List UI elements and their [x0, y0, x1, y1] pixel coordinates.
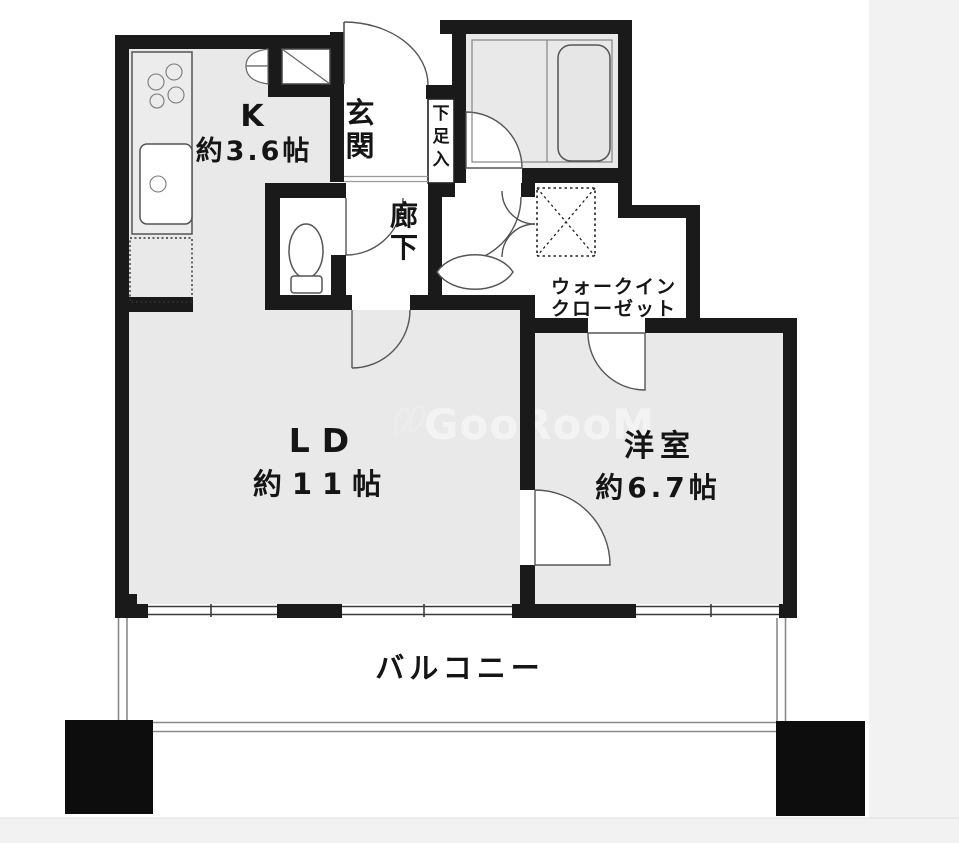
bathroom-east-wall: [618, 20, 632, 218]
kitchen-label: K: [240, 99, 265, 134]
washroom-door-opening: [455, 183, 521, 197]
bathtub-icon: [558, 45, 610, 161]
entrance-west-wall: [330, 32, 344, 182]
hall-washroom-divider-wall: [428, 183, 442, 310]
page-bottom-band: [0, 818, 959, 843]
hallway-label: 廊下: [390, 199, 418, 264]
living-dining-size-label: 約11帖: [253, 467, 391, 501]
walk-in-closet-label-line2: クローゼット: [551, 297, 677, 320]
south-wall-segment: [115, 604, 148, 618]
shoe-box-label: 下足入: [433, 104, 450, 170]
balcony-label: バルコニー: [375, 651, 544, 685]
western-room-north-wall: [520, 318, 797, 333]
shaft-south-wall: [268, 84, 344, 97]
toilet-south-wall: [265, 295, 346, 310]
left-pillar: [65, 720, 153, 814]
right-pillar: [776, 721, 865, 816]
page-right-band: [869, 0, 959, 843]
floor-plan-page: GooRooM: [0, 0, 959, 843]
western-room-size-label: 約6.7帖: [595, 471, 721, 504]
closet-east-wall: [686, 205, 700, 331]
hallway-ld-door-opening: [352, 295, 410, 310]
watermark-text: GooRooM: [424, 400, 655, 449]
west-wall: [115, 35, 129, 618]
south-wall-segment: [512, 604, 636, 618]
bathroom-north-wall: [440, 20, 632, 34]
closet-door-opening: [588, 318, 645, 333]
toilet-west-wall: [265, 183, 280, 310]
east-wall: [783, 318, 797, 618]
toilet-door-opening: [331, 198, 346, 255]
washroom-south-wall: [428, 295, 535, 310]
toilet-bowl-icon: [289, 224, 323, 278]
south-wall-segment: [779, 604, 797, 618]
south-wall-segment: [277, 604, 342, 618]
ld-western-door-opening: [520, 490, 535, 565]
toilet-tank-icon: [291, 276, 322, 293]
living-dining-label: LD: [289, 421, 361, 460]
kitchen-south-wall: [115, 297, 193, 312]
kitchen-north-wall: [115, 35, 344, 49]
floor-plan-drawing: GooRooM: [0, 0, 959, 843]
kitchen-size-label: 約3.6帖: [196, 135, 313, 167]
bathroom-door-opening: [466, 168, 522, 183]
shoebox-north-wall: [426, 85, 454, 99]
western-room-label: 洋室: [624, 429, 696, 464]
entrance-label: 玄関: [345, 96, 374, 163]
walk-in-closet-label-line1: ウォークイン: [551, 276, 677, 298]
